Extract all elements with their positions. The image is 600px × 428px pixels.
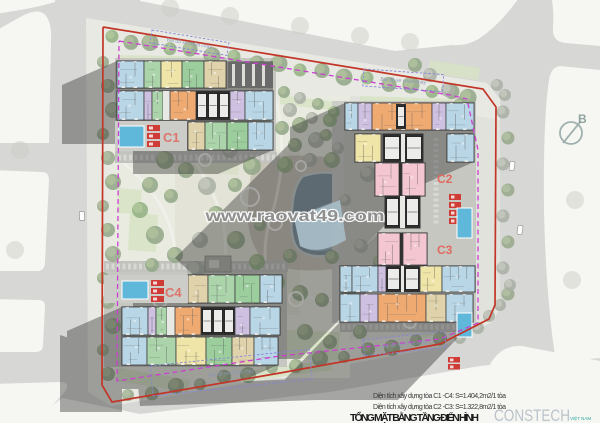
svg-text:C4: C4: [165, 285, 182, 300]
svg-text:Diện tích xây dựng tòa C1 -C4:: Diện tích xây dựng tòa C1 -C4: S=1.404,2…: [373, 393, 506, 400]
svg-text:CONSTECH: CONSTECH: [494, 406, 570, 423]
svg-text:C2: C2: [437, 172, 453, 186]
svg-text:Diện tích xây dựng tòa C2 -C3:: Diện tích xây dựng tòa C2 -C3: S=1.322,8…: [373, 404, 506, 411]
svg-text:VIỆT NAM: VIỆT NAM: [570, 414, 591, 421]
svg-text:C1: C1: [163, 130, 180, 145]
svg-text:www.raovat49.com: www.raovat49.com: [204, 208, 384, 225]
svg-text:TỔNG MẶT BẰNG TẦNG ĐIỂN HÌNH: TỔNG MẶT BẰNG TẦNG ĐIỂN HÌNH: [350, 411, 479, 423]
svg-text:B: B: [578, 112, 587, 126]
svg-text:C3: C3: [437, 243, 453, 257]
